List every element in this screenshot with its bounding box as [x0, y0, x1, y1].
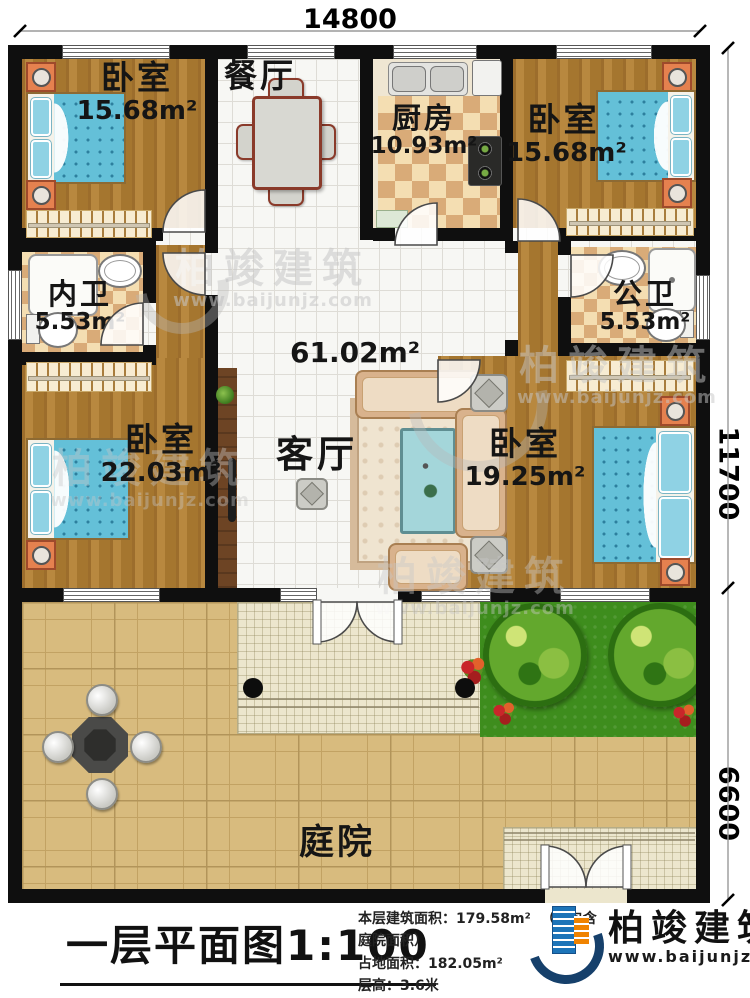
entry-opening: [317, 588, 398, 602]
pillow: [671, 138, 691, 176]
lawn: [480, 602, 696, 737]
label-kitchen: 厨房10.93m²: [368, 102, 480, 160]
plant: [216, 386, 234, 404]
nightstand: [26, 540, 56, 570]
wall: [505, 241, 518, 253]
label-living: 客厅: [262, 424, 372, 478]
brand-name: 柏竣建筑: [608, 911, 750, 947]
nightstand: [26, 62, 56, 92]
coffee-table: [400, 428, 456, 534]
bed: [592, 426, 696, 564]
porch-column: [243, 678, 263, 698]
wall: [373, 228, 395, 241]
label-bath-inner: 内卫5.53m²: [26, 278, 134, 336]
exterior-wall-left: [8, 45, 22, 903]
window: [280, 588, 317, 602]
label-courtyard: 庭院: [282, 814, 392, 865]
nightstand: [662, 178, 692, 208]
porch-column: [455, 678, 475, 698]
window: [560, 588, 650, 602]
pillow: [31, 140, 51, 178]
label-living-area: 61.02m²: [290, 336, 410, 369]
wall: [505, 340, 518, 356]
pillow: [31, 98, 51, 136]
fridge: [472, 60, 502, 96]
window: [393, 45, 477, 59]
wall: [558, 241, 571, 255]
wardrobe: [566, 208, 694, 236]
brand-logo-icon: [528, 898, 602, 978]
tv: [228, 458, 236, 522]
flower-cluster: [492, 698, 516, 726]
window: [556, 45, 652, 59]
courtyard-stool: [86, 778, 118, 810]
hallway-right: [518, 241, 558, 356]
courtyard-stool: [42, 731, 74, 763]
rear-pad: [503, 827, 698, 891]
label-bath-public: 公卫5.53m²: [590, 278, 700, 336]
nightstand: [660, 396, 690, 426]
side-table: [470, 536, 508, 574]
dimension-right-upper: 11700: [713, 414, 744, 534]
tree: [483, 603, 587, 707]
brand-url: www.baijunjz.com: [608, 947, 750, 966]
vestibule-left: [156, 245, 205, 358]
building-icon: [552, 906, 576, 954]
label-bedroom-bottom-right: 卧室19.25m²: [455, 426, 595, 492]
wall: [22, 241, 156, 252]
window: [8, 270, 22, 340]
window: [62, 45, 170, 59]
exterior-wall-right: [696, 45, 710, 903]
side-table: [470, 374, 508, 412]
dimension-right-lower: 6600: [713, 752, 744, 856]
wall: [437, 228, 500, 241]
mattress: [594, 428, 656, 562]
bed-headboard: [668, 92, 694, 180]
sofa: [388, 543, 468, 591]
flower-cluster: [672, 700, 696, 728]
building-icon-accent: [574, 916, 589, 944]
bed-headboard: [28, 94, 54, 182]
courtyard-table: [72, 717, 128, 773]
brand-logo: 柏竣建筑 www.baijunjz.com: [528, 898, 750, 978]
tree: [608, 603, 696, 707]
pillow: [31, 444, 51, 487]
pillow: [659, 432, 691, 493]
label-bedroom-bottom-left: 卧室22.03m²: [96, 422, 226, 488]
label-dining: 餐厅: [205, 58, 315, 95]
kitchen-sink: [388, 62, 468, 96]
kitchen-cabinet: [376, 210, 408, 228]
courtyard-stool: [86, 684, 118, 716]
floor-plan-page: { "dimensions": { "top": "14800", "right…: [0, 0, 750, 988]
pillow: [659, 497, 691, 558]
dimension-top: 14800: [295, 4, 405, 35]
wardrobe: [26, 210, 152, 238]
pillow: [671, 96, 691, 134]
burner: [477, 165, 493, 181]
nightstand: [26, 180, 56, 210]
window: [63, 588, 160, 602]
pillow: [31, 491, 51, 534]
bed-headboard: [656, 428, 694, 562]
label-bedroom-top-right: 卧室15.68m²: [506, 102, 621, 168]
wardrobe: [26, 362, 152, 392]
nightstand: [660, 558, 690, 586]
side-table: [296, 478, 328, 510]
bed-headboard: [28, 440, 54, 538]
nightstand: [662, 62, 692, 92]
label-bedroom-top-left: 卧室15.68m²: [72, 60, 202, 126]
courtyard-stool: [130, 731, 162, 763]
entry-porch: [237, 602, 482, 734]
wall: [143, 252, 156, 303]
dining-table: [252, 96, 322, 190]
wall: [558, 343, 696, 356]
wardrobe: [566, 360, 694, 392]
